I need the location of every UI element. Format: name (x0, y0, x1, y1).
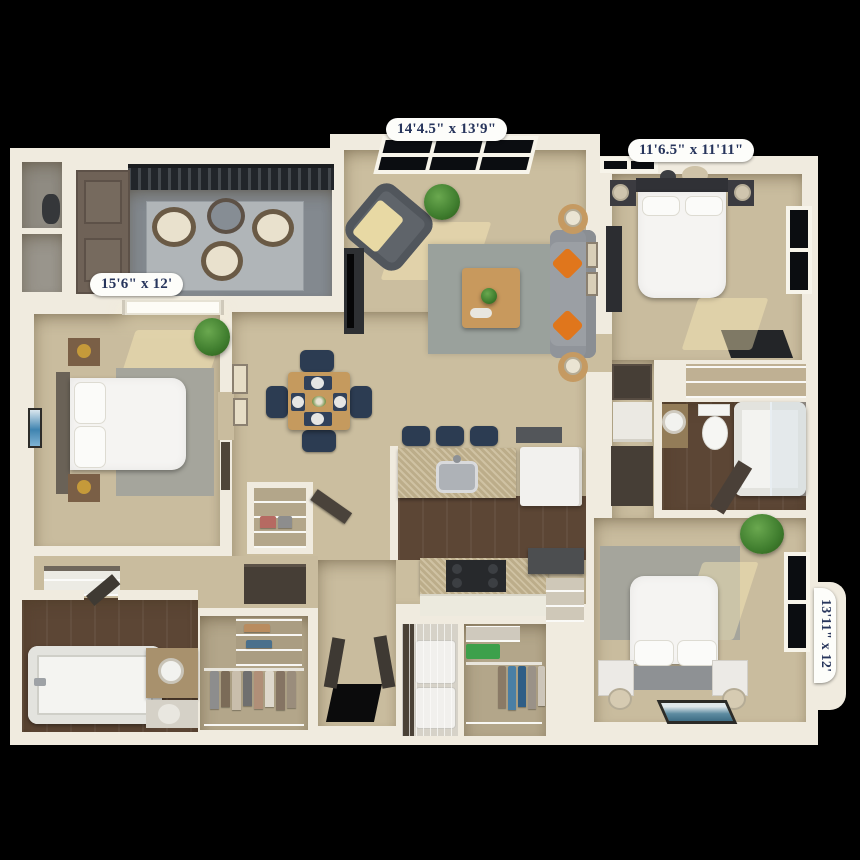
hanging-clothes (538, 666, 545, 706)
pantry-shelves (546, 578, 584, 622)
hanging-clothes (260, 516, 276, 528)
hanging-clothes (243, 671, 252, 706)
bed3-headboard (624, 666, 724, 690)
water-heater (42, 194, 60, 224)
toilet-tank (698, 404, 730, 416)
dresser (606, 226, 622, 312)
window-pane (604, 161, 627, 169)
wall-frame (586, 272, 598, 296)
closet2-shelf-stack (466, 626, 520, 642)
bed3-pillow (677, 640, 717, 666)
hanging-clothes (528, 666, 536, 709)
hanging-clothes (518, 666, 526, 707)
bedroom1-plant (194, 318, 230, 356)
plate (311, 413, 324, 425)
coffee-table-tray (470, 308, 492, 318)
bath2-wire-closet (686, 364, 806, 398)
patio-railing (128, 164, 334, 190)
laundry-wire-door (402, 624, 458, 736)
patio-chair (201, 241, 243, 281)
plate (292, 396, 304, 408)
centerpiece (312, 396, 326, 407)
window-pane (788, 556, 806, 600)
bedroom1-window-top (122, 300, 224, 315)
bath2-vessel-sink (662, 410, 686, 434)
table-lamp (564, 357, 582, 375)
hanging-clothes (210, 671, 219, 709)
living-window (373, 136, 538, 174)
burner (488, 578, 498, 588)
patio-chair (152, 207, 196, 247)
mirror-sink-reflection (158, 704, 180, 724)
dining-chair (302, 430, 336, 452)
closet2-bottom-shelf (466, 712, 542, 724)
green-bin (466, 644, 500, 659)
window-pane (788, 604, 806, 648)
closet1-bottom-shelf (204, 714, 304, 726)
hanging-clothes (254, 671, 263, 709)
dimension-label-bedroom-bottom-right: 13'11" x 12' (814, 588, 836, 683)
window-pane (790, 210, 808, 248)
utility-cubby (22, 234, 62, 292)
table-lamp (564, 209, 582, 227)
entry-door-mat (326, 684, 382, 722)
bedroom1-doorway (218, 392, 234, 440)
burner (452, 578, 462, 588)
hanging-clothes (287, 671, 296, 708)
bed1-pillow (74, 426, 106, 468)
bed2-headboard (636, 178, 728, 192)
burner (452, 564, 462, 574)
plate (311, 377, 324, 389)
toilet-bowl (702, 416, 728, 450)
gold-lamp (77, 480, 91, 494)
bed1-pillow (74, 382, 106, 424)
hall-wall-frame (233, 398, 248, 426)
window-pane (429, 157, 479, 170)
floor-art (657, 700, 738, 724)
closet-rail (466, 662, 542, 665)
dining-chair (350, 386, 372, 418)
folded-clothes (244, 624, 270, 632)
hanging-clothes (232, 671, 241, 710)
refrigerator (520, 447, 582, 506)
bath1-top-wall (22, 590, 84, 600)
wall-frame (586, 242, 598, 268)
bath1-top-wall (118, 590, 198, 600)
gold-lamp (77, 344, 91, 358)
dimension-label-bedroom-top-right: 11'6.5" x 11'11" (628, 139, 754, 162)
shower-glass (770, 402, 806, 496)
hanging-clothes (278, 516, 292, 528)
patio-chair (252, 209, 294, 247)
window-pane (790, 252, 808, 290)
dining-chair (266, 386, 288, 418)
kitchen-west-wall (390, 446, 398, 560)
window-pane (480, 157, 530, 170)
bedroom3-window-right (784, 552, 810, 652)
vanity-sink (158, 658, 184, 684)
bed2-pillow (642, 196, 680, 216)
hanging-clothes (508, 666, 516, 710)
console-shelf (516, 427, 562, 443)
right-counter (528, 548, 584, 574)
window-pane (378, 157, 428, 170)
coffee-table-plant (481, 288, 497, 304)
hall-appliance (613, 402, 652, 442)
hanging-clothes (221, 671, 230, 707)
window-pane (631, 161, 654, 169)
tub-faucet (34, 678, 46, 686)
tipped-lamp (608, 688, 632, 710)
hanging-clothes (276, 671, 285, 710)
bedroom1-door (221, 442, 230, 490)
hall-wall-frame (232, 364, 248, 394)
storage-door-panel (84, 180, 122, 224)
hanging-clothes (265, 671, 274, 707)
kitchen-sink (436, 461, 478, 493)
bedroom1-wall-art (28, 408, 42, 448)
bar-stool (470, 426, 498, 446)
bedroom3-plant (740, 514, 784, 554)
floor-plan-scene: 14'4.5" x 13'9" 11'6.5" x 11'11" 15'6" x… (0, 0, 860, 860)
nightstand-lamp (612, 184, 629, 201)
window-pane (382, 140, 432, 153)
dimension-label-bedroom-left: 15'6" x 12' (90, 273, 183, 296)
bar-stool (436, 426, 464, 446)
bed2-pillow (685, 196, 723, 216)
patio-table (207, 198, 245, 234)
bed3-pillow (634, 640, 674, 666)
bathtub (28, 646, 162, 724)
kitchen-cabinet-fronts (420, 594, 548, 616)
burner (488, 564, 498, 574)
hanging-clothes (498, 666, 506, 708)
tv-screen (347, 254, 354, 328)
hall-cabinet-dark (244, 564, 306, 604)
hall-upper-cabinet (612, 364, 652, 400)
dimension-label-living: 14'4.5" x 13'9" (386, 118, 507, 141)
plate (334, 396, 346, 408)
living-plant (424, 184, 460, 220)
nightstand-lamp (734, 184, 751, 201)
window-pane (433, 140, 483, 153)
window-pane (484, 140, 534, 153)
dining-chair (300, 350, 334, 372)
bar-stool (402, 426, 430, 446)
folded-clothes (246, 640, 272, 648)
bedroom2-window-right (786, 206, 812, 294)
sink-faucet (453, 455, 461, 463)
hall-lower-cabinet (611, 446, 653, 506)
